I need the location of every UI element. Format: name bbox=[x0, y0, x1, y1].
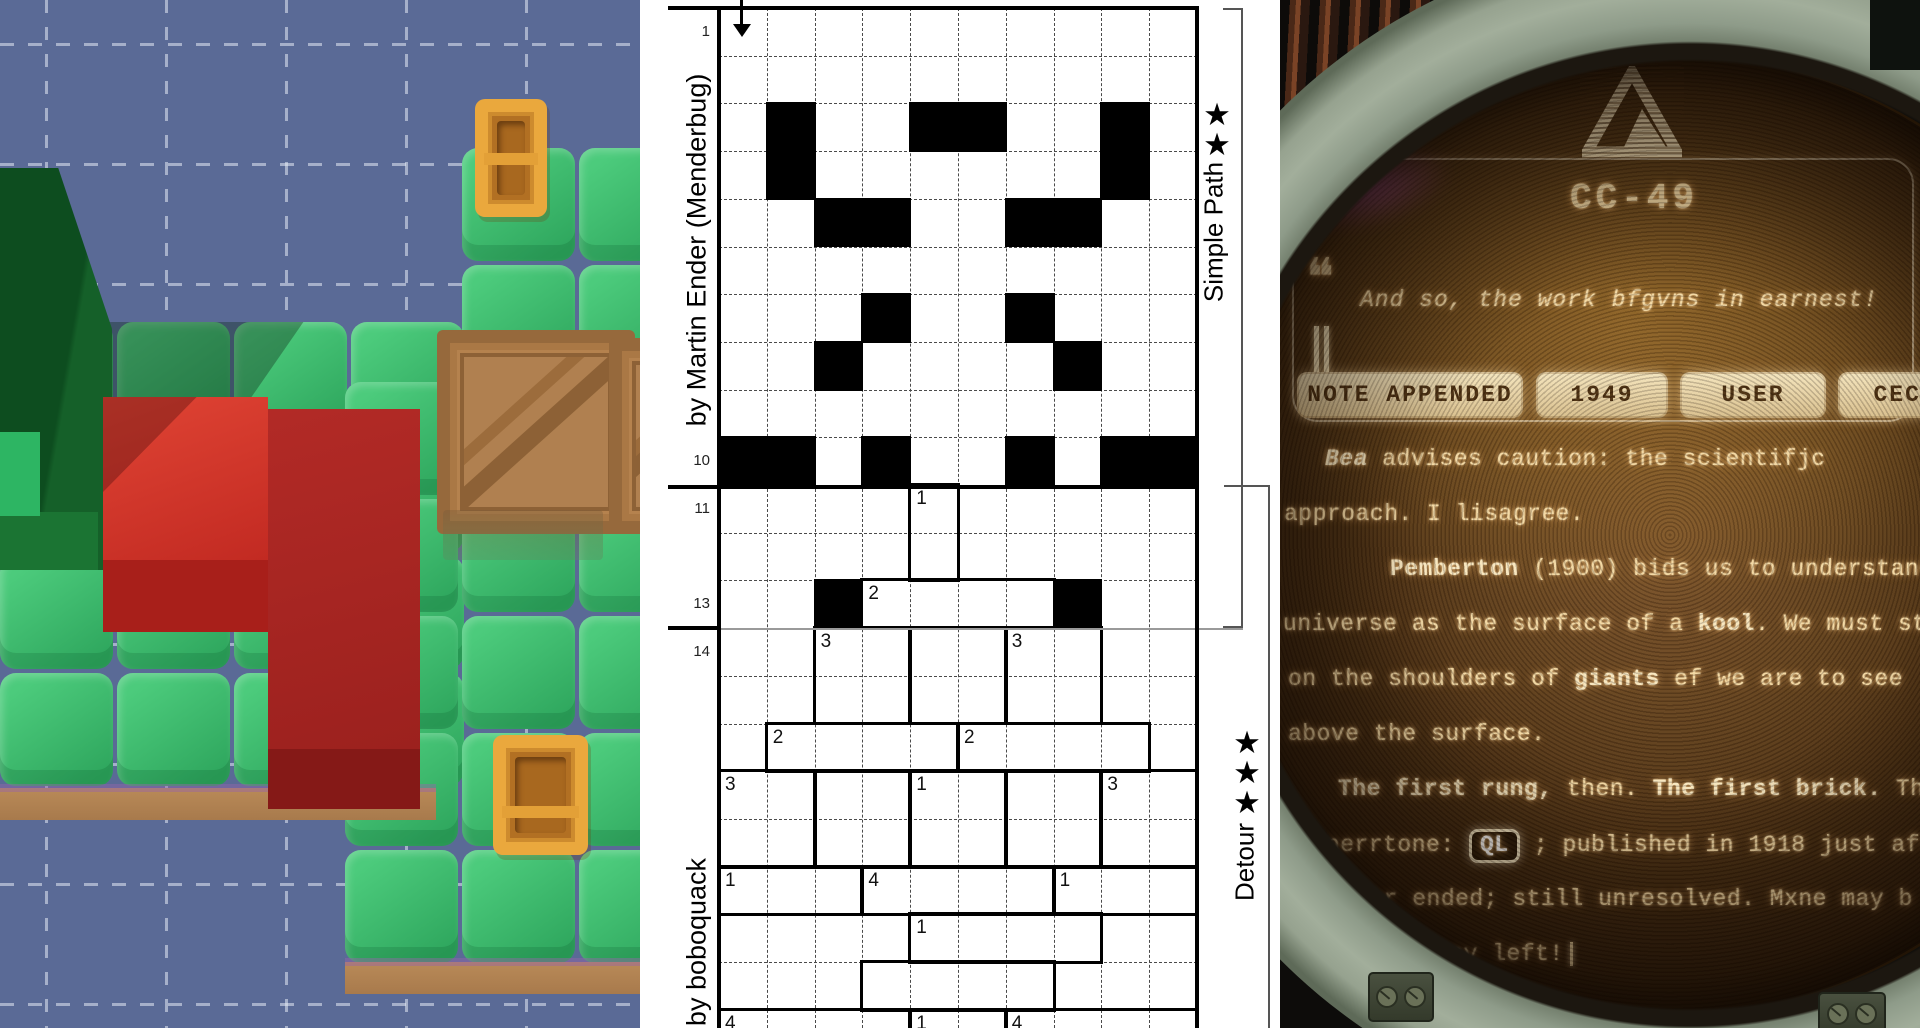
black-cell bbox=[814, 341, 864, 391]
black-cell bbox=[1005, 436, 1055, 486]
region-number: 3 bbox=[1012, 631, 1023, 653]
text-segment: above the surface. bbox=[1288, 721, 1545, 747]
black-cell bbox=[861, 293, 911, 343]
text-segment: Bea bbox=[1325, 446, 1368, 472]
region-number: 1 bbox=[916, 774, 927, 796]
region-number: 3 bbox=[1107, 774, 1118, 796]
black-cell bbox=[1100, 436, 1150, 486]
quote-bar-2 bbox=[1324, 326, 1329, 378]
region-number: 3 bbox=[821, 631, 832, 653]
black-cell bbox=[909, 102, 959, 152]
green-cube bbox=[579, 148, 640, 261]
screen-text-line: Pemberton (1900) bids us to understand t… bbox=[1390, 556, 1920, 582]
text-segment: kool bbox=[1698, 611, 1755, 637]
station-logo-icon bbox=[1582, 66, 1682, 158]
block-face bbox=[0, 432, 40, 516]
region-outline bbox=[765, 722, 960, 774]
detour-stars: ★ ★ ★ bbox=[1226, 728, 1268, 818]
black-cell bbox=[1005, 293, 1055, 343]
screen-text-line: opy left! bbox=[1435, 941, 1573, 967]
label-detour: Detour bbox=[1230, 823, 1261, 901]
screen-text-line: war ended; still unresolved. Mxne may b bbox=[1355, 886, 1913, 912]
black-cell bbox=[957, 102, 1007, 152]
row-number: 14 bbox=[666, 643, 710, 660]
region-number: 3 bbox=[725, 774, 736, 796]
wooden-crate[interactable] bbox=[609, 338, 640, 534]
crate-diagonal-plank bbox=[632, 361, 640, 511]
simple-path-stars: ★ ★ bbox=[1196, 100, 1238, 160]
text-segment: ef we are to see bbox=[1660, 666, 1903, 692]
entry-arrow-shaft bbox=[740, 0, 743, 26]
screw-icon bbox=[1376, 986, 1398, 1008]
green-cube bbox=[579, 733, 640, 846]
panel-block-puzzle-game bbox=[0, 0, 640, 1028]
black-cell bbox=[718, 436, 768, 486]
grid-line-h bbox=[719, 294, 1197, 295]
region-outline bbox=[1004, 769, 1104, 868]
region-outline bbox=[1004, 1008, 1199, 1028]
black-cell bbox=[1100, 150, 1150, 200]
thick-separator bbox=[668, 6, 1199, 10]
region-outline bbox=[717, 1008, 912, 1028]
green-cube bbox=[462, 850, 575, 963]
text-segment: cornerrtone: bbox=[1283, 832, 1469, 858]
author-simple-path: by Martin Ender (Menderbug) bbox=[682, 74, 713, 427]
black-cell bbox=[1100, 102, 1150, 152]
orange-crate-rim bbox=[502, 806, 579, 818]
stitch-line-h bbox=[0, 43, 640, 46]
region-number: 4 bbox=[1012, 1013, 1023, 1028]
row-number: 11 bbox=[666, 500, 710, 517]
green-cube bbox=[0, 673, 113, 786]
row-number: 13 bbox=[666, 595, 710, 612]
green-cube bbox=[0, 556, 113, 669]
black-cell bbox=[861, 198, 911, 248]
black-cell bbox=[766, 150, 816, 200]
quote-mark-icon: ❝ bbox=[1306, 248, 1334, 308]
metadata-chip: CECIL bbox=[1838, 372, 1920, 418]
text-segment: The first rung, bbox=[1338, 776, 1553, 802]
metal-plate-right bbox=[1818, 992, 1886, 1028]
screen-text-line: universe as the surface of a kool. We mu… bbox=[1283, 611, 1920, 637]
quote-text: And so, the work bfgvns in earnest! bbox=[1360, 287, 1878, 313]
entry-arrow-head bbox=[733, 24, 751, 37]
text-segment: Pemberton bbox=[1390, 556, 1519, 582]
green-cube bbox=[579, 850, 640, 963]
region-outline bbox=[1052, 865, 1199, 917]
text-segment: on the shoulders of bbox=[1288, 666, 1574, 692]
block-face bbox=[268, 749, 420, 809]
green-cube bbox=[345, 850, 458, 963]
green-cube bbox=[579, 616, 640, 729]
label-simple-path: Simple Path bbox=[1199, 162, 1230, 302]
triptych-screenshot: 1233223131411414110111314 by Martin Ende… bbox=[0, 0, 1920, 1028]
ql-reference-badge[interactable]: QL bbox=[1469, 829, 1520, 863]
corner-shadow-right bbox=[1870, 0, 1920, 70]
panel-crt-terminal: CC-49 ❝ And so, the work bfgvns in earne… bbox=[1280, 0, 1920, 1028]
text-segment: advises caution: the scientifjc bbox=[1368, 446, 1826, 472]
text-segment: war ended; still unresolved. Mxne may b bbox=[1355, 886, 1913, 912]
region-outline bbox=[908, 912, 1103, 964]
green-cube bbox=[462, 616, 575, 729]
text-segment: universe as the surface of a bbox=[1283, 611, 1698, 637]
author-detour: by boboquack bbox=[682, 858, 713, 1026]
panel-puzzle-sheet: 1233223131411414110111314 by Martin Ende… bbox=[640, 0, 1280, 1028]
quote-bar-1 bbox=[1314, 326, 1319, 378]
wooden-crate-panel bbox=[632, 361, 640, 511]
region-number: 2 bbox=[773, 727, 784, 749]
black-cell bbox=[1148, 436, 1198, 486]
metadata-chip: 1949 bbox=[1536, 372, 1668, 418]
text-segment: . We must sta bbox=[1755, 611, 1920, 637]
orange-open-crate[interactable] bbox=[475, 99, 547, 217]
stitch-line-h bbox=[0, 1003, 640, 1006]
region-number: 4 bbox=[725, 1013, 736, 1028]
screen-text-line: cornerrtone: QL ; published in 1918 just… bbox=[1283, 829, 1920, 863]
black-cell bbox=[814, 198, 864, 248]
metadata-chip: USER bbox=[1680, 372, 1826, 418]
grid-line-h bbox=[719, 56, 1197, 57]
grid-line-h bbox=[719, 247, 1197, 248]
green-cube bbox=[117, 673, 230, 786]
detour-bracket-tick bbox=[1224, 485, 1268, 487]
simple-path-bracket bbox=[1241, 8, 1243, 628]
simple-path-bracket-tick-top bbox=[1223, 8, 1241, 10]
metal-plate-left bbox=[1368, 972, 1434, 1022]
black-cell bbox=[861, 436, 911, 486]
screw-icon bbox=[1404, 986, 1426, 1008]
text-segment: The bbox=[1882, 776, 1920, 802]
text-segment: (1900) bids us to understand th bbox=[1519, 556, 1920, 582]
detour-bracket bbox=[1268, 485, 1270, 1028]
row-number: 10 bbox=[666, 452, 710, 469]
screw-icon bbox=[1855, 1003, 1877, 1025]
black-cell bbox=[1053, 198, 1103, 248]
wooden-crate[interactable] bbox=[437, 330, 635, 534]
metadata-chip: NOTE APPENDED bbox=[1297, 372, 1523, 418]
orange-crate-opening bbox=[515, 757, 566, 833]
thick-separator bbox=[668, 626, 719, 630]
block-face bbox=[268, 409, 420, 749]
region-number: 1 bbox=[916, 1013, 927, 1028]
grid-left-border bbox=[717, 8, 721, 1028]
text-segment: opy left! bbox=[1435, 941, 1564, 967]
region-outline bbox=[813, 769, 913, 868]
black-cell bbox=[766, 102, 816, 152]
text-segment: giants bbox=[1574, 666, 1660, 692]
black-cell bbox=[1053, 341, 1103, 391]
simple-path-bracket-tick-bottom bbox=[1223, 626, 1241, 628]
region-outline bbox=[860, 578, 1055, 630]
black-cell bbox=[814, 579, 864, 629]
text-cursor bbox=[1570, 942, 1573, 966]
black-cell bbox=[1053, 579, 1103, 629]
text-segment: then. bbox=[1553, 776, 1653, 802]
region-outline bbox=[908, 626, 1008, 725]
screw-icon bbox=[1827, 1003, 1849, 1025]
region-outline bbox=[860, 865, 1055, 917]
orange-open-crate[interactable] bbox=[493, 735, 588, 855]
block-face bbox=[0, 512, 98, 570]
region-number: 1 bbox=[1060, 870, 1071, 892]
platform-edge-tint bbox=[345, 958, 640, 966]
region-number: 4 bbox=[868, 870, 879, 892]
region-outline bbox=[717, 865, 864, 917]
text-segment: approach. I lisagree. bbox=[1284, 501, 1584, 527]
text-segment: The first brick. bbox=[1653, 776, 1882, 802]
region-number: 1 bbox=[725, 870, 736, 892]
platform-edge bbox=[345, 962, 640, 994]
orange-crate-rim bbox=[484, 153, 538, 165]
text-segment: ; published in 1918 just afte bbox=[1520, 832, 1920, 858]
section-separator bbox=[719, 628, 1243, 630]
region-outline bbox=[860, 960, 1055, 1012]
screen-text-line: Bea advises caution: the scientifjc bbox=[1325, 446, 1826, 472]
grid-line-h bbox=[719, 342, 1197, 343]
block-face bbox=[103, 560, 268, 632]
thick-separator bbox=[668, 485, 1199, 489]
screen-text-line: above the surface. bbox=[1288, 721, 1545, 747]
grid-line-h bbox=[719, 390, 1197, 391]
row-number: 1 bbox=[666, 23, 710, 40]
region-number: 2 bbox=[964, 727, 975, 749]
region-number: 1 bbox=[916, 917, 927, 939]
screen-text-line: The first rung, then. The first brick. T… bbox=[1338, 776, 1920, 802]
region-outline bbox=[956, 722, 1151, 774]
wooden-crate-panel bbox=[460, 353, 612, 511]
screen-text-line: on the shoulders of giants ef we are to … bbox=[1288, 666, 1903, 692]
black-cell bbox=[1005, 198, 1055, 248]
crate-reflection bbox=[443, 510, 603, 560]
black-cell bbox=[766, 436, 816, 486]
region-number: 1 bbox=[916, 488, 927, 510]
screen-text-line: approach. I lisagree. bbox=[1284, 501, 1584, 527]
region-number: 2 bbox=[868, 583, 879, 605]
